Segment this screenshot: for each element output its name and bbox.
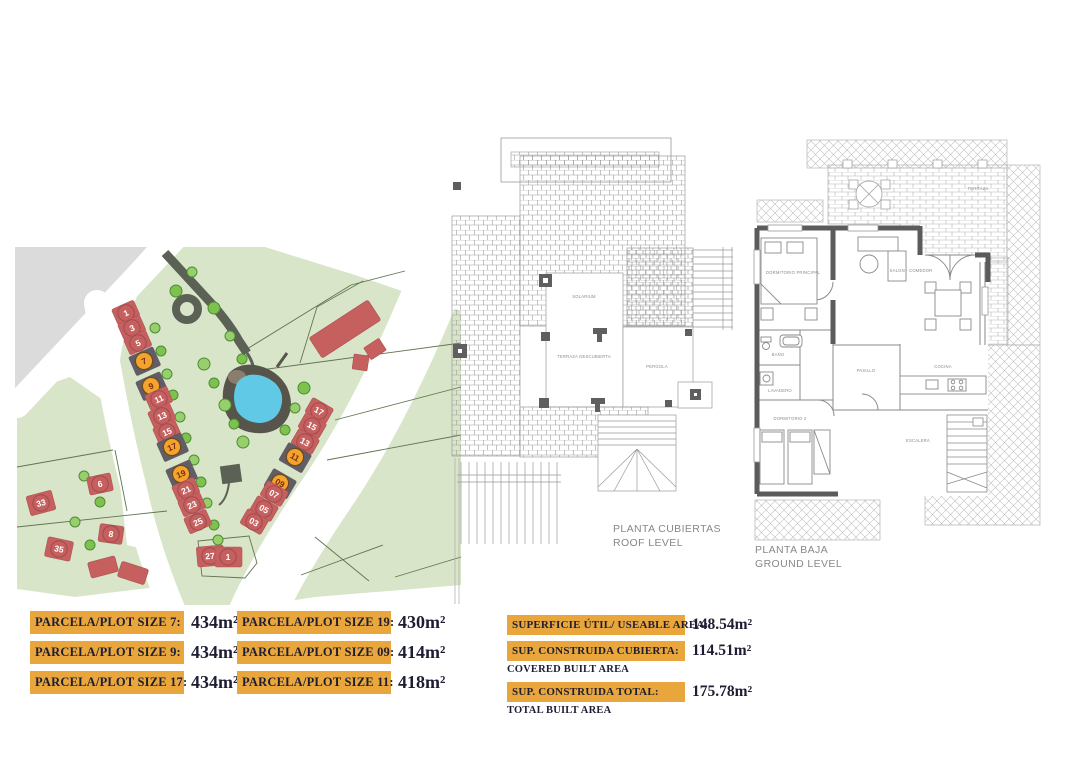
roof-plan-title-es: PLANTA CUBIERTAS	[613, 522, 721, 536]
summary-sublabel: TOTAL BUILT AREA	[507, 704, 685, 717]
site-plan-map: 1 3 5 7 9 11 13 15 17 19 21 23 25 27 1 1…	[15, 245, 465, 605]
table-row: PARCELA/PLOT SIZE 7: 434m²	[30, 611, 238, 634]
roof-plan-title-en: ROOF LEVEL	[613, 536, 721, 550]
ground-plan-title: PLANTA BAJA GROUND LEVEL	[755, 543, 842, 571]
table-row: PARCELA/PLOT SIZE 09: 414m²	[237, 641, 445, 664]
plot-size-table-col2: PARCELA/PLOT SIZE 19: 430m² PARCELA/PLOT…	[237, 611, 445, 701]
roof-pergola-left	[455, 458, 561, 604]
plot-size-table-col1: PARCELA/PLOT SIZE 7: 434m² PARCELA/PLOT …	[30, 611, 238, 701]
ground-room-label: COCINA	[934, 364, 952, 369]
plot-size-label: PARCELA/PLOT SIZE 11:	[237, 671, 391, 694]
ground-room-label: TERRAZA	[968, 186, 989, 191]
ground-room-label: DORMITORIO 2	[773, 416, 807, 421]
ground-room-label: BAÑO	[772, 352, 785, 357]
table-row: PARCELA/PLOT SIZE 11: 418m²	[237, 671, 445, 694]
summary-label: SUPERFICIE ÚTIL/ USEABLE AREA:	[507, 615, 685, 635]
ground-plan-title-en: GROUND LEVEL	[755, 557, 842, 571]
plot-size-value: 434m²	[191, 641, 238, 664]
ground-room-label: LAVADERO	[768, 388, 792, 393]
plot-size-value: 434m²	[191, 611, 238, 634]
ground-room-label: ESCALERA	[906, 438, 930, 443]
ground-room-label: DORMITORIO PRINCIPAL	[766, 270, 821, 275]
summary-label: SUP. CONSTRUIDA TOTAL:	[507, 682, 685, 702]
table-row: PARCELA/PLOT SIZE 17: 434m²	[30, 671, 238, 694]
plot-size-value: 434m²	[191, 671, 238, 694]
roof-pergola-right	[693, 247, 733, 330]
plot-label: 1	[226, 552, 231, 562]
ground-floor-plan: DORMITORIO PRINCIPAL SALON - COMEDOR COC…	[748, 132, 1063, 572]
roof-room-label: SOLARIUM	[572, 294, 596, 299]
ground-plan-title-es: PLANTA BAJA	[755, 543, 842, 557]
plot-size-label: PARCELA/PLOT SIZE 17:	[30, 671, 184, 694]
ground-stairs	[947, 415, 987, 492]
roof-room-label: PERGOLA	[646, 364, 668, 369]
plot-size-label: PARCELA/PLOT SIZE 7:	[30, 611, 184, 634]
plot-size-value: 414m²	[398, 641, 445, 664]
plot-size-value: 418m²	[398, 671, 445, 694]
table-row: PARCELA/PLOT SIZE 9: 434m²	[30, 641, 238, 664]
ground-room-label: PASILLO	[857, 368, 876, 373]
plot-size-label: PARCELA/PLOT SIZE 09:	[237, 641, 391, 664]
summary-label: SUP. CONSTRUIDA CUBIERTA:	[507, 641, 685, 661]
summary-value: 175.78m²	[692, 682, 752, 702]
table-row: SUPERFICIE ÚTIL/ USEABLE AREA: 148.54m²	[507, 615, 752, 635]
roof-room-label: TERRAZA DESCUBIERTA	[557, 354, 611, 359]
roof-stairs	[598, 415, 676, 491]
summary-value: 148.54m²	[692, 615, 752, 635]
table-row: SUP. CONSTRUIDA TOTAL: TOTAL BUILT AREA …	[507, 682, 752, 717]
plot-label: 27	[205, 551, 216, 562]
plot-size-value: 430m²	[398, 611, 445, 634]
plot-size-label: PARCELA/PLOT SIZE 19:	[237, 611, 391, 634]
area-summary-table: SUPERFICIE ÚTIL/ USEABLE AREA: 148.54m² …	[507, 615, 752, 723]
table-row: PARCELA/PLOT SIZE 19: 430m²	[237, 611, 445, 634]
summary-sublabel: COVERED BUILT AREA	[507, 663, 685, 676]
plot-size-label: PARCELA/PLOT SIZE 9:	[30, 641, 184, 664]
brochure-page: 1 3 5 7 9 11 13 15 17 19 21 23 25 27 1 1…	[0, 0, 1065, 777]
ground-room-label: SALON - COMEDOR	[890, 268, 933, 273]
summary-value: 114.51m²	[692, 641, 751, 661]
table-row: SUP. CONSTRUIDA CUBIERTA: COVERED BUILT …	[507, 641, 752, 676]
roof-plan-title: PLANTA CUBIERTAS ROOF LEVEL	[613, 522, 721, 550]
